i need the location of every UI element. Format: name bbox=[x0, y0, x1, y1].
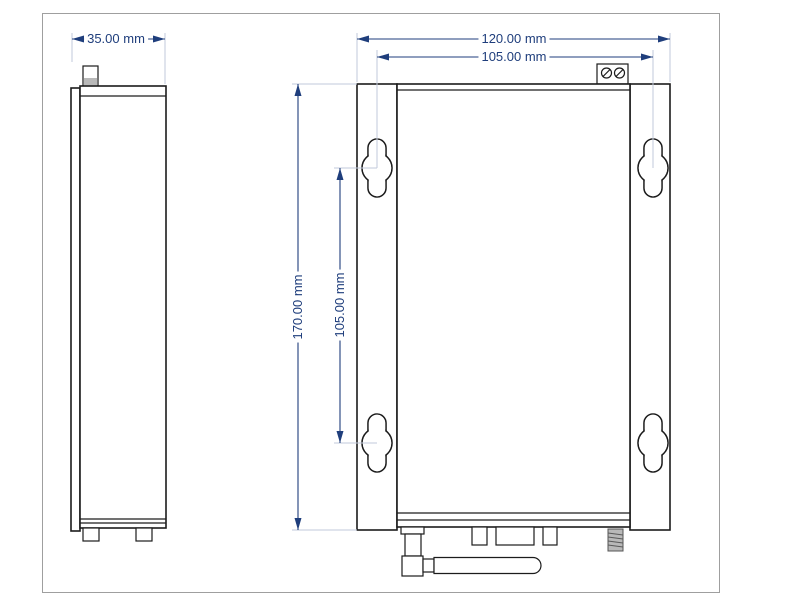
dim-mount-spacing-v-label: 105.00 mm bbox=[333, 269, 347, 340]
sma-connector bbox=[401, 527, 434, 576]
dim-side-width-label: 35.00 mm bbox=[84, 32, 148, 46]
connector-tab-right bbox=[543, 527, 557, 545]
side-mounting-plate bbox=[71, 88, 80, 531]
antenna bbox=[434, 558, 541, 574]
thread-stud bbox=[608, 529, 623, 551]
terminal-block bbox=[597, 64, 628, 84]
side-foot-left bbox=[83, 528, 99, 541]
front-view bbox=[357, 64, 670, 576]
side-view bbox=[71, 66, 166, 541]
technical-drawing bbox=[0, 0, 800, 600]
connector-tab-left bbox=[472, 527, 487, 545]
front-body bbox=[397, 84, 630, 527]
dim-front-height-label: 170.00 mm bbox=[291, 271, 305, 342]
drawing-canvas: 聚信隆诚 JU XIN LONG CHENG bbox=[0, 0, 800, 600]
side-body bbox=[80, 86, 166, 528]
dim-front-width-label: 120.00 mm bbox=[478, 32, 549, 46]
serial-connector bbox=[496, 527, 534, 545]
side-foot-right bbox=[136, 528, 152, 541]
dim-mount-spacing-h-label: 105.00 mm bbox=[478, 50, 549, 64]
